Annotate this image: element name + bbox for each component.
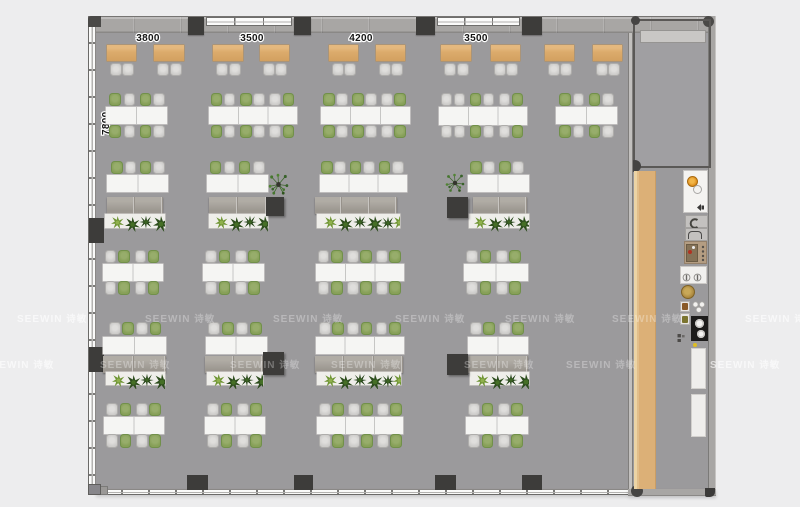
svg-text:4200: 4200: [349, 33, 373, 43]
svg-text:3800: 3800: [136, 33, 160, 43]
svg-text:3500: 3500: [464, 33, 488, 43]
svg-text:3500: 3500: [240, 33, 264, 43]
